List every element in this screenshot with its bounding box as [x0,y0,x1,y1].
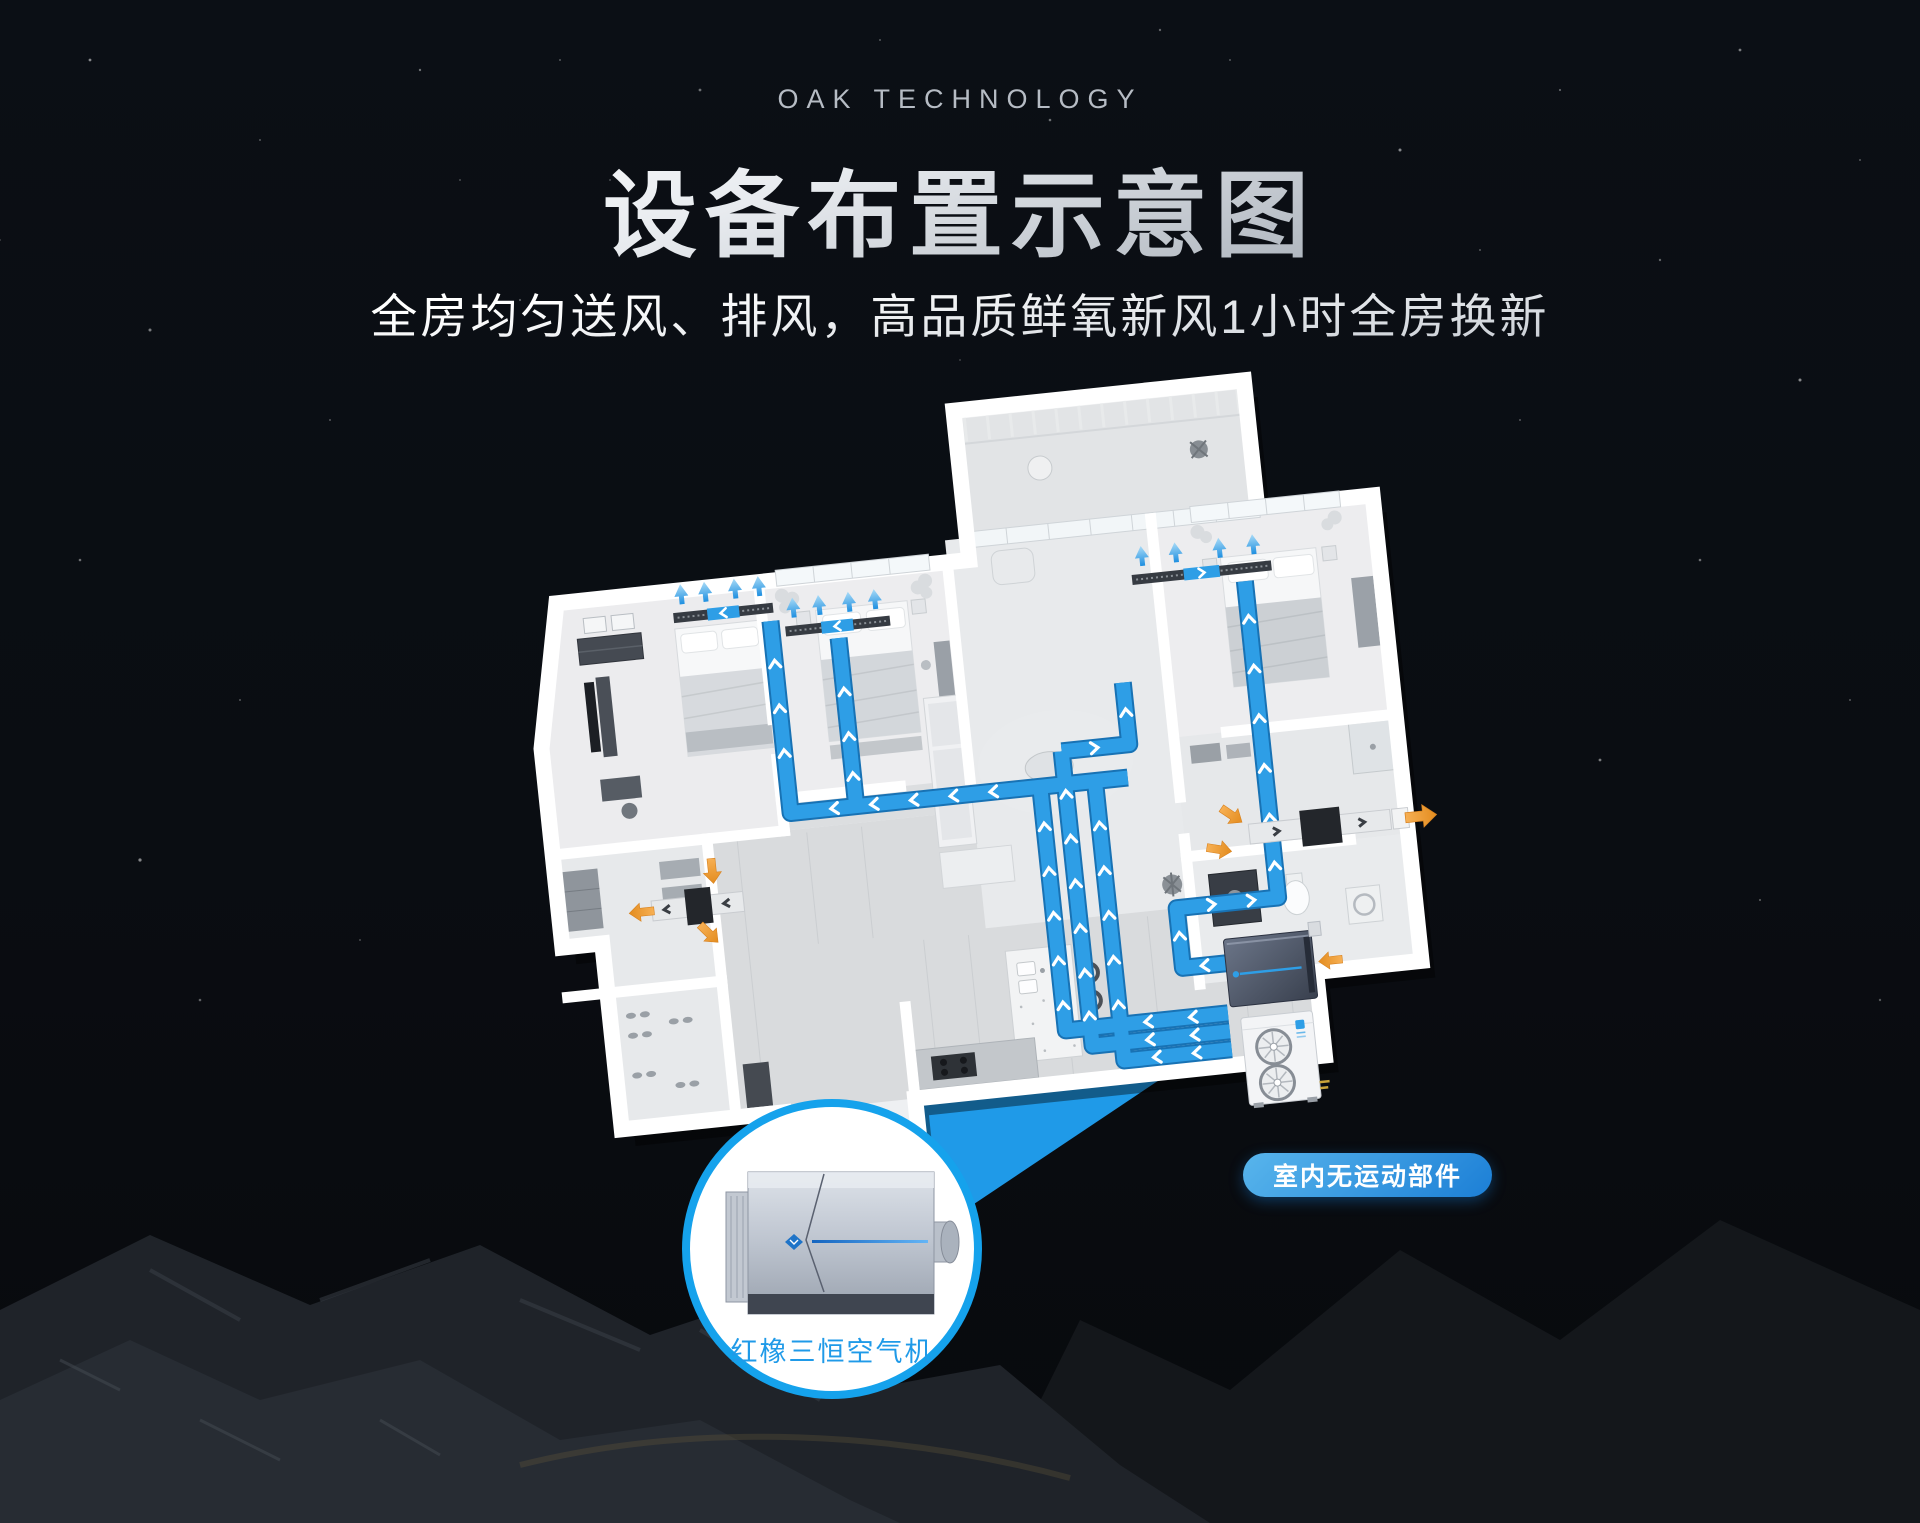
brand-text: OAK TECHNOLOGY [0,84,1920,115]
floor-plan-group [511,365,1468,1209]
no-moving-parts-badge: 室内无运动部件 [1243,1153,1492,1197]
air-handler-device-illustration [726,1172,959,1314]
fan-icon [1259,1064,1296,1101]
device-label: 红橡三恒空气机 [692,1330,972,1369]
page-title: 设备布置示意图 [0,140,1920,276]
poster-page: OAK TECHNOLOGY 设备布置示意图 全房均匀送风、排风，高品质鲜氧新风… [0,0,1920,1523]
brand-logo-mark [1295,1019,1305,1029]
fan-icon [1255,1028,1292,1065]
page-subtitle: 全房均匀送风、排风，高品质鲜氧新风1小时全房换新 [0,278,1920,347]
